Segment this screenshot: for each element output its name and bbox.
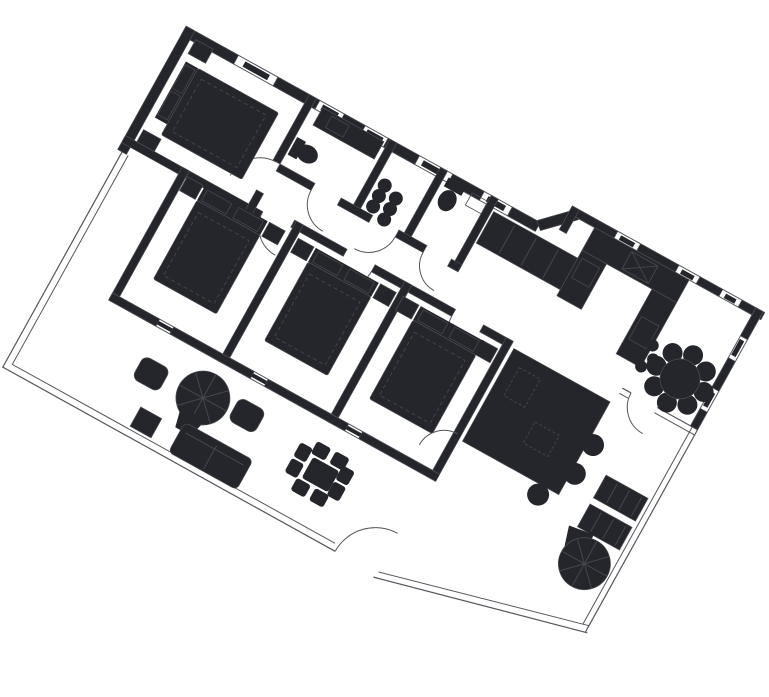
- armchair: [132, 355, 171, 392]
- armchair: [228, 397, 267, 434]
- floor-plan-canvas: [0, 0, 769, 697]
- wing-right-wall: [712, 358, 735, 392]
- window-dash: [157, 321, 173, 332]
- dining-chair: [311, 441, 332, 461]
- bathroom-bottom-wall: [276, 164, 315, 190]
- floor-plan-svg: [0, 0, 769, 697]
- side-table: [130, 407, 162, 438]
- bedroom-row-bottom-wall: [359, 432, 440, 482]
- entrance-door-arc: [335, 511, 398, 574]
- floor-plan-group: [0, 0, 765, 681]
- window-dash: [346, 426, 362, 437]
- bedroom-row-bottom-wall: [109, 293, 160, 326]
- terrace-door-arc: [617, 393, 658, 434]
- island-block: [462, 349, 610, 495]
- dining-chair: [335, 465, 355, 486]
- window-dash: [251, 373, 267, 384]
- dining-chair: [284, 458, 304, 479]
- wing-top-wall: [696, 277, 723, 297]
- dressing-door-arc: [354, 222, 395, 263]
- wing-connector-wall: [533, 196, 581, 244]
- dining-chair: [293, 442, 313, 463]
- wc-door-arc: [409, 252, 447, 290]
